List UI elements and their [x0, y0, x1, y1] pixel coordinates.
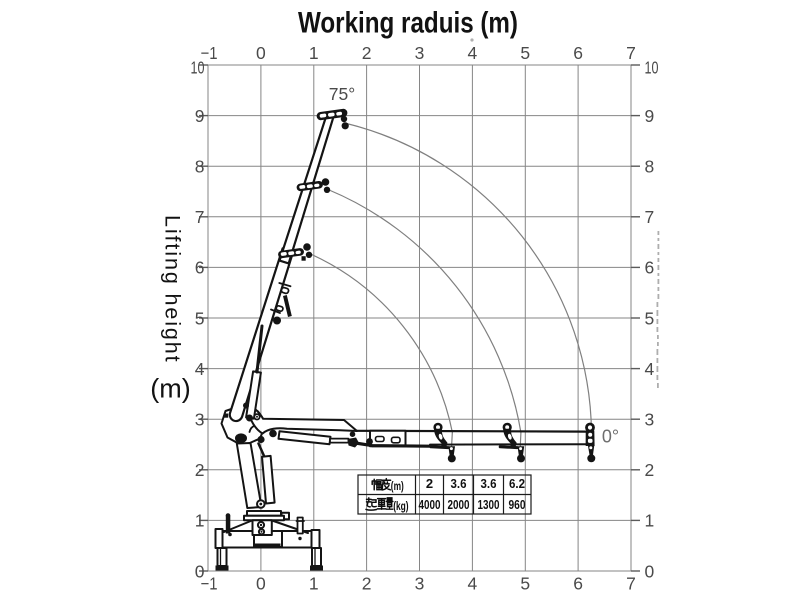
svg-text:5: 5 [520, 574, 530, 594]
svg-text:7: 7 [195, 207, 205, 227]
svg-text:4000: 4000 [419, 497, 441, 512]
svg-text:6.2: 6.2 [509, 476, 525, 491]
svg-text:4: 4 [468, 43, 478, 63]
svg-text:6: 6 [645, 258, 655, 278]
svg-text:2: 2 [362, 43, 372, 63]
svg-text:8: 8 [195, 157, 205, 177]
svg-text:Working raduis (m): Working raduis (m) [298, 7, 518, 40]
svg-text:5: 5 [520, 43, 530, 63]
svg-text:10: 10 [191, 57, 205, 77]
svg-text:3: 3 [645, 410, 655, 430]
svg-text:0: 0 [256, 574, 266, 594]
svg-text:1: 1 [309, 574, 319, 594]
svg-text:7: 7 [626, 574, 636, 594]
svg-text:960: 960 [509, 497, 526, 512]
svg-text:1: 1 [195, 511, 205, 531]
svg-text:6: 6 [573, 574, 583, 594]
svg-text:3.6: 3.6 [481, 476, 497, 491]
svg-text:2000: 2000 [448, 497, 470, 512]
svg-text:2: 2 [362, 574, 372, 594]
svg-text:6: 6 [573, 43, 583, 63]
svg-text:9: 9 [645, 106, 655, 126]
svg-text:0: 0 [645, 561, 655, 581]
svg-text:(m): (m) [150, 374, 190, 404]
svg-text:1300: 1300 [478, 497, 500, 512]
svg-text:10: 10 [645, 57, 659, 77]
svg-text:(m): (m) [391, 479, 404, 493]
svg-text:1: 1 [645, 511, 655, 531]
svg-text:8: 8 [645, 157, 655, 177]
svg-text:7: 7 [645, 207, 655, 227]
svg-text:6: 6 [195, 258, 205, 278]
svg-text:3: 3 [195, 410, 205, 430]
svg-text:2: 2 [195, 460, 205, 480]
svg-text:4: 4 [468, 574, 478, 594]
svg-text:75°: 75° [329, 84, 355, 104]
svg-text:5: 5 [195, 308, 205, 328]
svg-text:Lifting height: Lifting height [161, 215, 185, 364]
svg-text:3: 3 [415, 43, 425, 63]
svg-text:0°: 0° [602, 427, 619, 447]
svg-text:4: 4 [195, 359, 205, 379]
svg-text:(kg): (kg) [393, 499, 408, 513]
svg-text:3.6: 3.6 [451, 476, 467, 491]
svg-text:2: 2 [426, 476, 433, 491]
svg-text:0: 0 [195, 561, 205, 581]
svg-text:4: 4 [645, 359, 655, 379]
svg-text:0: 0 [256, 43, 266, 63]
svg-text:1: 1 [309, 43, 319, 63]
svg-text:2: 2 [645, 460, 655, 480]
svg-text:5: 5 [645, 308, 655, 328]
svg-text:3: 3 [415, 574, 425, 594]
svg-text:7: 7 [626, 43, 636, 63]
svg-text:9: 9 [195, 106, 205, 126]
